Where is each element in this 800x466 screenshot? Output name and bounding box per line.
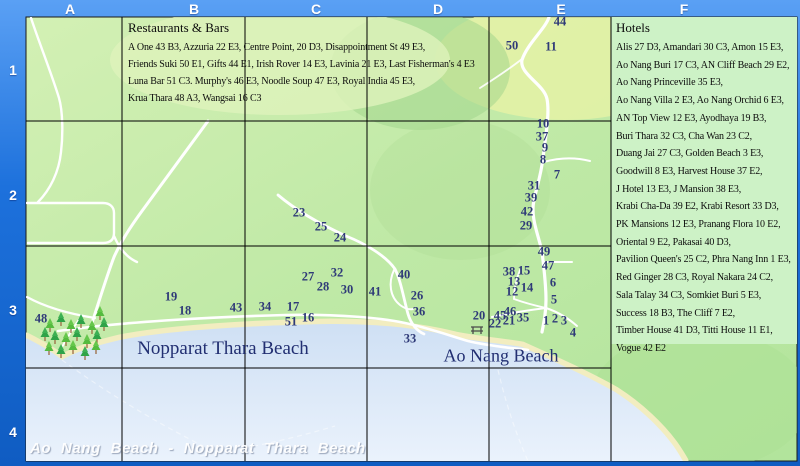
map-marker-39: 39	[525, 191, 538, 206]
hotels-title: Hotels	[616, 20, 796, 36]
restaurants-line: Krua Thara 48 A3, Wangsai 16 C3	[128, 90, 598, 107]
hotels-line: Timber House 41 D3, Titti House 11 E1,	[616, 322, 796, 340]
map-marker-33: 33	[404, 332, 417, 347]
map-marker-23: 23	[293, 206, 306, 221]
hotels-line: Ao Nang Buri 17 C3, AN Cliff Beach 29 E2…	[616, 57, 796, 75]
column-label-F: F	[680, 1, 689, 17]
row-label-1: 1	[9, 62, 17, 78]
map-marker-2: 2	[552, 312, 558, 327]
column-label-B: B	[189, 1, 199, 17]
map-marker-5: 5	[551, 293, 557, 308]
hotels-line: Duang Jai 27 C3, Golden Beach 3 E3,	[616, 145, 796, 163]
map-marker-49: 49	[538, 245, 551, 260]
map-title: Ao Nang Beach - Nopparat Thara Beach	[30, 440, 366, 457]
map-marker-11: 11	[545, 40, 557, 55]
hotels-line: Krabi Cha-Da 39 E2, Krabi Resort 33 D3,	[616, 198, 796, 216]
hotels-line: Ao Nang Villa 2 E3, Ao Nang Orchid 6 E3,	[616, 92, 796, 110]
restaurants-title: Restaurants & Bars	[128, 20, 598, 36]
hotels-line: Alis 27 D3, Amandari 30 C3, Amon 15 E3,	[616, 39, 796, 57]
map-marker-21: 21	[503, 314, 516, 329]
map-marker-18: 18	[179, 304, 192, 319]
map-marker-27: 27	[302, 270, 315, 285]
map-marker-14: 14	[521, 281, 534, 296]
restaurants-line: Luna Bar 51 C3. Murphy's 46 E3, Noodle S…	[128, 73, 598, 90]
hotels-line: Red Ginger 28 C3, Royal Nakara 24 C2,	[616, 269, 796, 287]
hotels-legend: Hotels Alis 27 D3, Amandari 30 C3, Amon …	[616, 20, 796, 358]
map-marker-24: 24	[334, 231, 347, 246]
restaurants-line: A One 43 B3, Azzuria 22 E3, Centre Point…	[128, 39, 598, 56]
map-marker-29: 29	[520, 219, 533, 234]
map-marker-35: 35	[517, 311, 530, 326]
hotels-line: Sala Talay 34 C3, Somkiet Buri 5 E3,	[616, 287, 796, 305]
map-marker-48: 48	[35, 312, 48, 327]
map-marker-26: 26	[411, 289, 424, 304]
map-marker-22: 22	[489, 317, 502, 332]
map-marker-36: 36	[413, 305, 426, 320]
hotels-line: Ao Nang Princeville 35 E3,	[616, 74, 796, 92]
row-label-2: 2	[9, 187, 17, 203]
map-marker-30: 30	[341, 283, 354, 298]
beach-label-nopparat-thara: Nopparat Thara Beach	[137, 338, 309, 360]
map-marker-40: 40	[398, 268, 411, 283]
row-label-4: 4	[9, 424, 17, 440]
map-marker-34: 34	[259, 300, 272, 315]
hotels-line: Vogue 42 E2	[616, 340, 796, 358]
restaurants-line: Friends Suki 50 E1, Gifts 44 E1, Irish R…	[128, 56, 598, 73]
hotels-line: Oriental 9 E2, Pakasai 40 D3,	[616, 234, 796, 252]
hotels-line: Buri Thara 32 C3, Cha Wan 23 C2,	[616, 128, 796, 146]
map-marker-41: 41	[369, 285, 382, 300]
map-marker-28: 28	[317, 280, 330, 295]
column-label-D: D	[433, 1, 443, 17]
beach-label-ao-nang: Ao Nang Beach	[444, 346, 559, 367]
map-marker-3: 3	[561, 314, 567, 329]
map-marker-20: 20	[473, 309, 486, 324]
map-marker-7: 7	[554, 168, 560, 183]
row-label-3: 3	[9, 302, 17, 318]
hotels-line: Goodwill 8 E3, Harvest House 37 E2,	[616, 163, 796, 181]
map-marker-1: 1	[543, 314, 549, 329]
map-marker-16: 16	[302, 311, 315, 326]
map-marker-51: 51	[285, 315, 298, 330]
map-marker-47: 47	[542, 259, 555, 274]
map-marker-19: 19	[165, 290, 178, 305]
hotels-line: AN Top View 12 E3, Ayodhaya 19 B3,	[616, 110, 796, 128]
hotels-line: PK Mansions 12 E3, Pranang Flora 10 E2,	[616, 216, 796, 234]
map-marker-17: 17	[287, 300, 300, 315]
map-marker-50: 50	[506, 39, 519, 54]
column-label-C: C	[311, 1, 321, 17]
hotels-line: Pavilion Queen's 25 C2, Phra Nang Inn 1 …	[616, 251, 796, 269]
hotels-line: J Hotel 13 E3, J Mansion 38 E3,	[616, 181, 796, 199]
map-page: ABCDEF 1234 Restaurants & Bars A One 43 …	[0, 0, 800, 466]
map-marker-42: 42	[521, 205, 534, 220]
map-marker-44: 44	[554, 15, 567, 30]
map-marker-8: 8	[540, 153, 546, 168]
map-marker-6: 6	[550, 276, 556, 291]
column-label-A: A	[65, 1, 75, 17]
map-marker-25: 25	[315, 220, 328, 235]
restaurants-legend: Restaurants & Bars A One 43 B3, Azzuria …	[128, 20, 598, 107]
map-marker-12: 12	[506, 285, 519, 300]
map-marker-43: 43	[230, 301, 243, 316]
map-marker-4: 4	[570, 326, 576, 341]
map-marker-32: 32	[331, 266, 344, 281]
hotels-line: Success 18 B3, The Cliff 7 E2,	[616, 305, 796, 323]
